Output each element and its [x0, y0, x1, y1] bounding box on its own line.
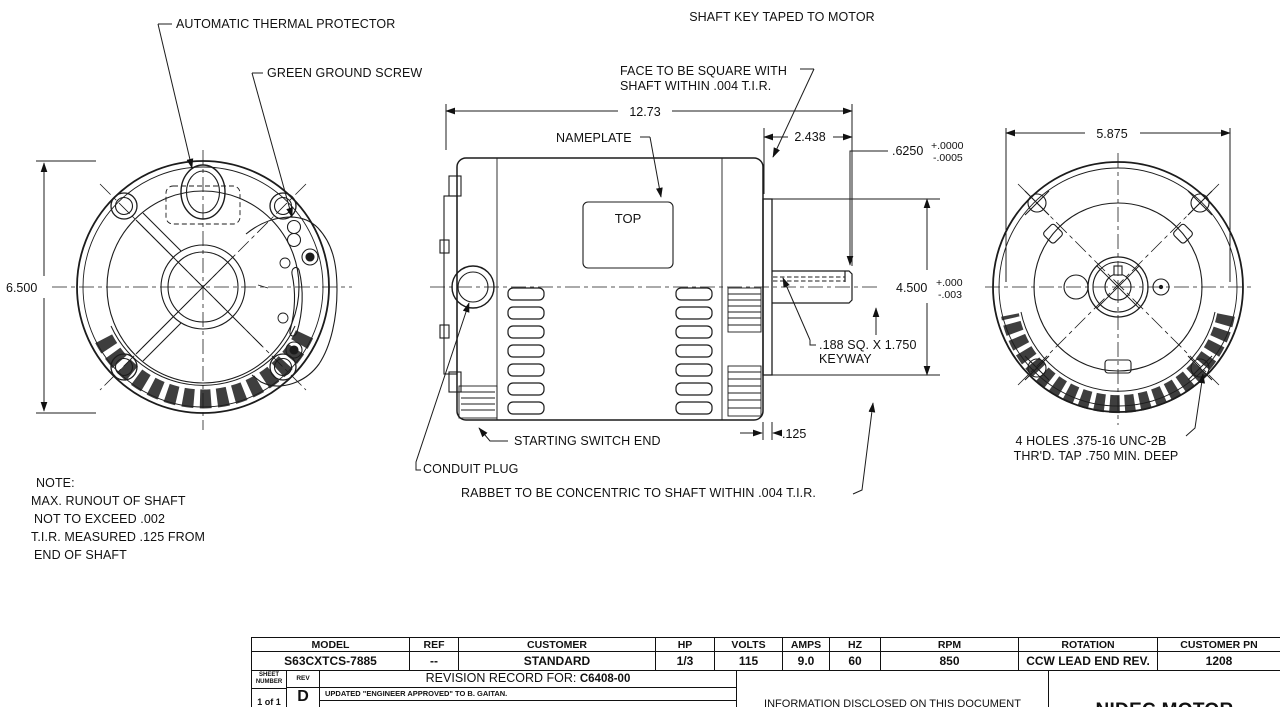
sheet-label-2: NUMBER	[256, 679, 282, 685]
company-name: NIDEC MOTOR	[1095, 700, 1233, 707]
side-view	[430, 158, 880, 420]
rev-label: REV	[287, 671, 319, 688]
dim-overall-length	[446, 104, 852, 266]
value-amps: 9.0	[783, 652, 830, 671]
note-line-2: NOT TO EXCEED .002	[34, 512, 165, 526]
sheet-label-1: SHEET	[259, 672, 279, 678]
header-hz: HZ	[830, 638, 881, 652]
value-ref: --	[410, 652, 459, 671]
face-square-callout-2: SHAFT WITHIN .004 T.I.R.	[620, 79, 771, 93]
rear-view	[985, 153, 1252, 425]
dim-rabbet-depth	[740, 422, 779, 440]
header-model: MODEL	[252, 638, 410, 652]
sheet-value: 1 of 1	[252, 689, 286, 707]
conduit-plug-callout: CONDUIT PLUG	[423, 462, 518, 476]
value-rotation: CCW LEAD END REV.	[1019, 652, 1158, 671]
holes-callout-2: THR'D. TAP .750 MIN. DEEP	[1014, 449, 1179, 463]
holes-callout-1: 4 HOLES .375-16 UNC-2B	[1016, 434, 1167, 448]
thermal-callout: AUTOMATIC THERMAL PROTECTOR	[176, 17, 395, 31]
value-hz: 60	[830, 652, 881, 671]
dim-shaft-extension-text: 2.438	[794, 130, 825, 144]
dim-bolt-circle-text: 5.875	[1096, 127, 1127, 141]
keyway-callout-1: .188 SQ. X 1.750	[819, 338, 917, 352]
keyway-callout-2: KEYWAY	[819, 352, 872, 366]
proprietary-line-1: INFORMATION DISCLOSED ON THIS DOCUMENT	[764, 698, 1021, 707]
revision-note: UPDATED "ENGINEER APPROVED" TO B. GAITAN…	[320, 688, 736, 701]
note-title: NOTE:	[36, 476, 75, 490]
header-volts: VOLTS	[715, 638, 783, 652]
nameplate-top-text: TOP	[615, 211, 642, 226]
company-name-cell: NIDEC MOTOR	[1049, 671, 1280, 707]
starting-switch-callout: STARTING SWITCH END	[514, 434, 661, 448]
rev-value: D	[287, 688, 319, 706]
header-rotation: ROTATION	[1019, 638, 1158, 652]
value-customer-pn: 1208	[1158, 652, 1280, 671]
revision-row: SHEET NUMBER 1 of 1 REV D REVISION RECOR…	[252, 671, 1280, 707]
value-hp: 1/3	[656, 652, 715, 671]
header-customer-pn: CUSTOMER PN	[1158, 638, 1280, 652]
proprietary-notice: INFORMATION DISCLOSED ON THIS DOCUMENT I…	[737, 671, 1049, 707]
dim-shaft-dia-tolm: -.0005	[933, 152, 963, 164]
shaft-key-callout: SHAFT KEY TAPED TO MOTOR	[689, 10, 875, 24]
title-block-table: MODEL REF CUSTOMER HP VOLTS AMPS HZ RPM …	[251, 637, 1280, 707]
terminal-area	[246, 217, 337, 386]
note-line-4: END OF SHAFT	[34, 548, 127, 562]
rabbet-callout: RABBET TO BE CONCENTRIC TO SHAFT WITHIN …	[461, 486, 816, 500]
revision-record-label: REVISION RECORD FOR:	[426, 671, 577, 685]
nameplate-callout: NAMEPLATE	[556, 131, 632, 145]
value-customer: STANDARD	[459, 652, 656, 671]
header-rpm: RPM	[881, 638, 1019, 652]
ground-screw-callout: GREEN GROUND SCREW	[267, 66, 422, 80]
dim-shaft-dia	[850, 151, 888, 335]
front-view	[52, 150, 352, 430]
value-model: S63CXTCS-7885	[252, 652, 410, 671]
note-block: NOTE: MAX. RUNOUT OF SHAFT NOT TO EXCEED…	[31, 476, 205, 562]
header-hp: HP	[656, 638, 715, 652]
engineering-drawing-page: 6.500	[0, 0, 1280, 707]
table-value-row: S63CXTCS-7885 -- STANDARD 1/3 115 9.0 60…	[252, 652, 1280, 671]
value-volts: 115	[715, 652, 783, 671]
header-amps: AMPS	[783, 638, 830, 652]
revision-record-cell: REVISION RECORD FOR: C6408-00 UPDATED "E…	[320, 671, 737, 707]
note-line-3: T.I.R. MEASURED .125 FROM	[31, 530, 205, 544]
revision-doc-number: C6408-00	[580, 673, 631, 685]
dim-rabbet-depth-text: .125	[782, 427, 806, 441]
dim-rabbet-dia-text: 4.500	[896, 281, 927, 295]
value-rpm: 850	[881, 652, 1019, 671]
motor-drawing-canvas: 6.500	[0, 0, 1280, 637]
note-line-1: MAX. RUNOUT OF SHAFT	[31, 494, 186, 508]
header-customer: CUSTOMER	[459, 638, 656, 652]
dim-shaft-dia-tolp: +.0000	[931, 140, 964, 152]
sheet-number-cell: SHEET NUMBER 1 of 1	[252, 671, 287, 707]
dim-front-od-text: 6.500	[6, 281, 37, 295]
rev-cell: REV D	[287, 671, 320, 707]
face-square-callout-1: FACE TO BE SQUARE WITH	[620, 64, 787, 78]
dim-shaft-dia-text: .6250	[892, 144, 923, 158]
table-header-row: MODEL REF CUSTOMER HP VOLTS AMPS HZ RPM …	[252, 638, 1280, 652]
dim-rabbet-dia-tolp: +.000	[936, 277, 963, 289]
header-ref: REF	[410, 638, 459, 652]
dim-overall-length-text: 12.73	[629, 105, 660, 119]
dim-rabbet-dia-tolm: -.003	[938, 289, 962, 301]
